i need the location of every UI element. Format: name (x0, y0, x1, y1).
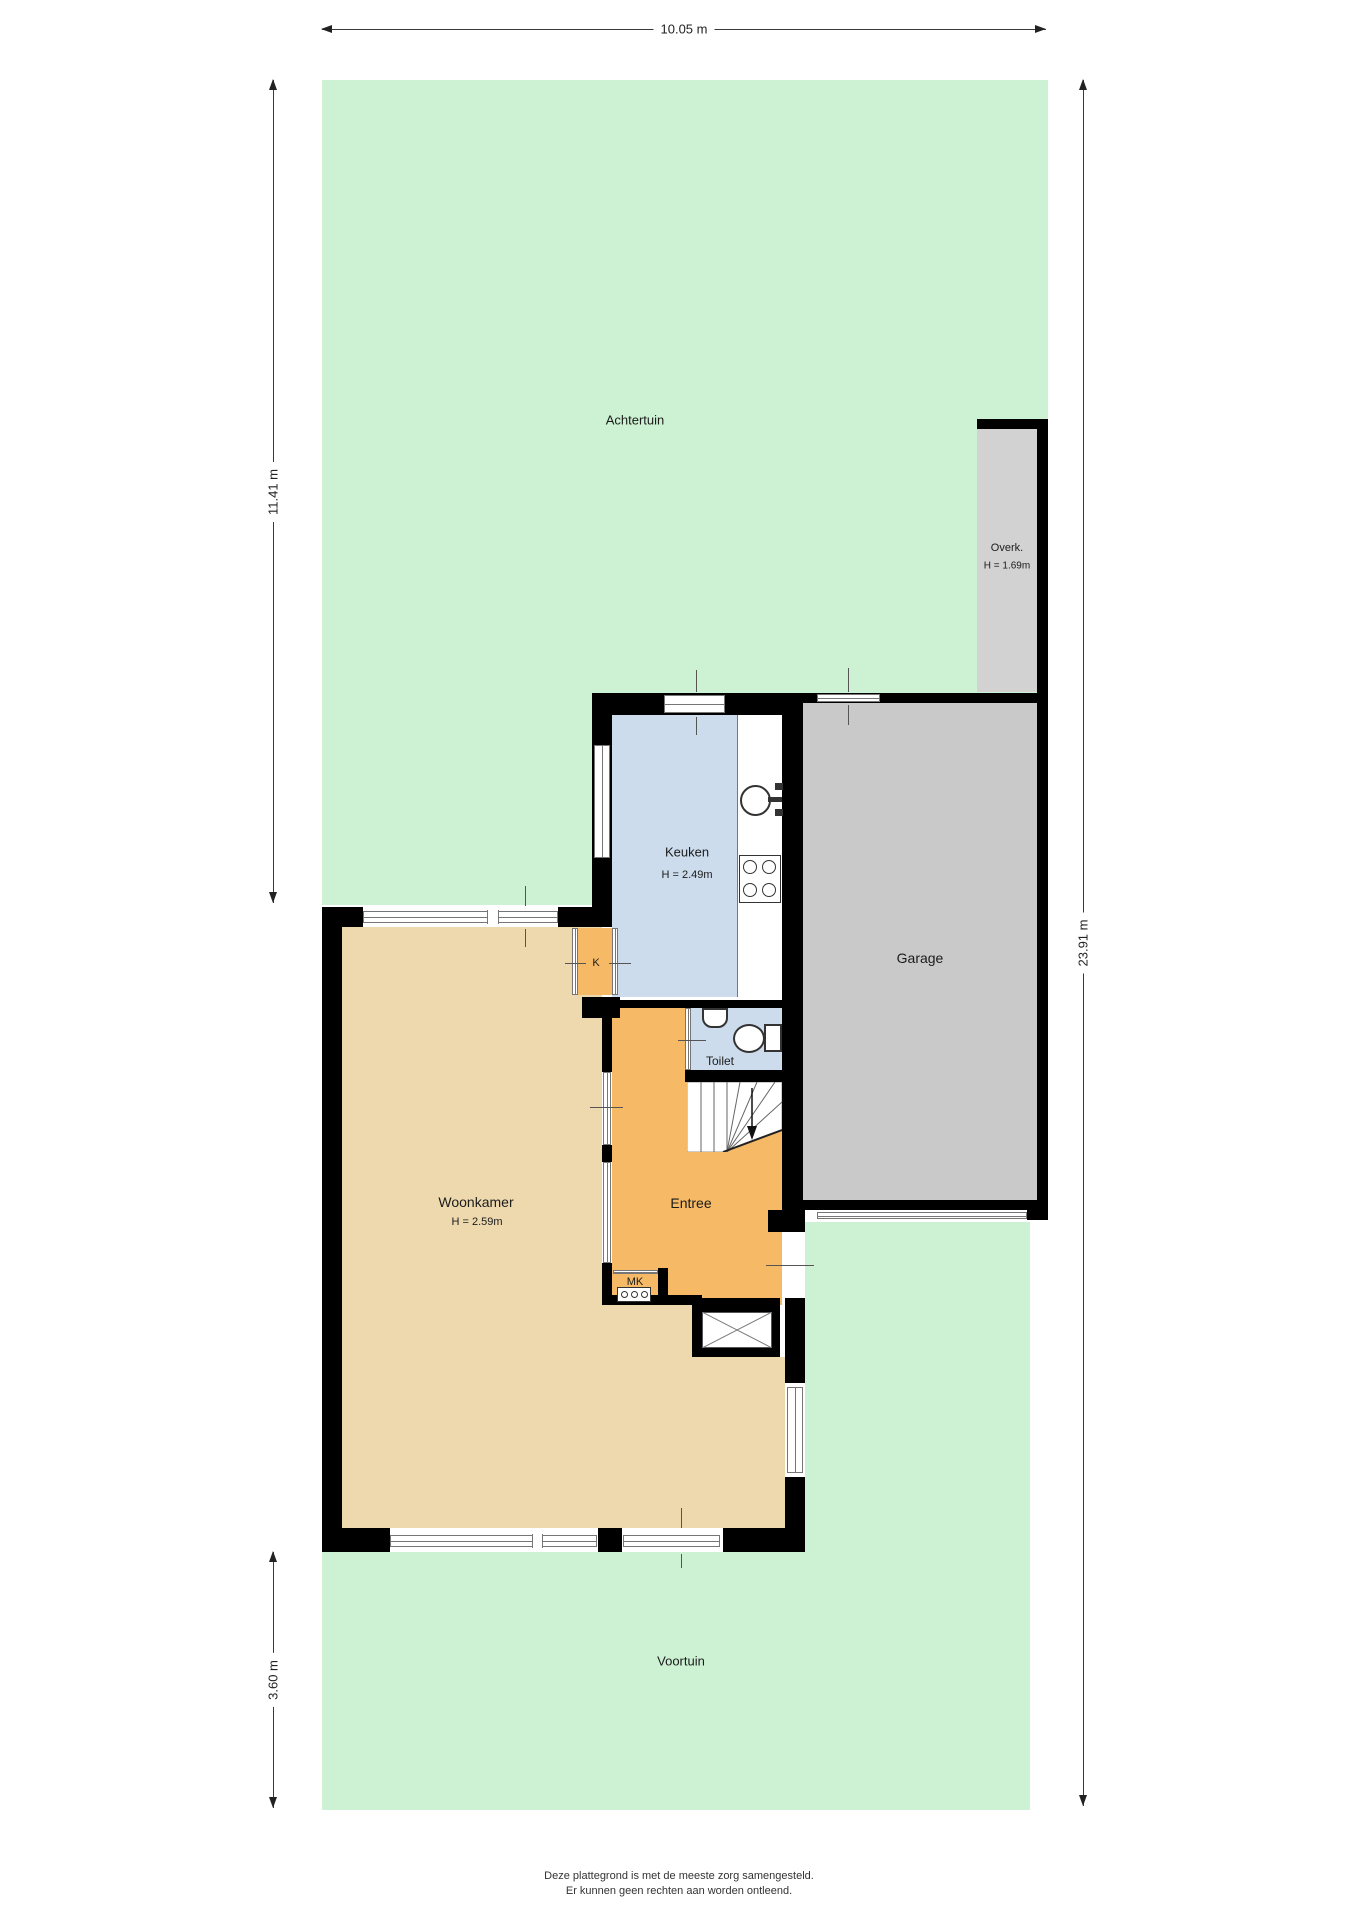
hall-east-window (787, 1387, 803, 1473)
mk-door (613, 1270, 658, 1274)
toilet-wc-bowl (733, 1024, 765, 1053)
meter-closet-label: MK (627, 1276, 644, 1288)
closet-door-left (572, 928, 578, 995)
disclaimer-line-1: Deze plattegrond is met de meeste zorg s… (0, 1869, 1358, 1884)
closet-label: K (592, 957, 599, 969)
disclaimer-line-2: Er kunnen geen rechten aan worden ontlee… (0, 1884, 1358, 1899)
front-door-leaf (702, 1312, 772, 1348)
hall-west-glass-b (603, 1162, 611, 1263)
living-room-extension (602, 1305, 692, 1528)
dim-left-back-label: 11.41 m (266, 462, 281, 522)
stove-burner-4 (762, 883, 776, 897)
dim-top-label: 10.05 m (654, 22, 715, 37)
dim-right-label: 23.91 m (1076, 913, 1091, 974)
wall-garage-front-left-corner (768, 1210, 805, 1232)
dim-left-back-arrow-bottom (269, 892, 277, 903)
tick-toilet-door (678, 1040, 706, 1041)
kitchen-rear-window (664, 695, 725, 713)
tick-bay-in (681, 1554, 682, 1568)
toilet-wc-cistern (764, 1024, 782, 1052)
tick-living-north-out (525, 886, 526, 906)
wall-hall-west-b (602, 1145, 612, 1162)
dim-top-arrow-left (321, 25, 332, 33)
closet-door-right (612, 928, 618, 995)
tick-garage-window-in (848, 705, 849, 725)
living-north-window-mullion (487, 910, 499, 924)
kitchen-faucet (768, 797, 782, 802)
front-garden-label: Voortuin (657, 1654, 705, 1669)
toilet-label: Toilet (706, 1054, 734, 1068)
wall-garage-front (803, 1200, 1048, 1210)
kitchen-height-label: H = 2.49m (661, 869, 712, 881)
tick-hall-west (590, 1107, 623, 1108)
tick-garage-window-out (848, 668, 849, 692)
kitchen-label: Keuken (665, 845, 709, 860)
meter-dial-1 (621, 1291, 628, 1298)
meter-dial-2 (631, 1291, 638, 1298)
wall-bay-pier (598, 1528, 622, 1552)
tick-hall-east (766, 1265, 814, 1266)
garage-label: Garage (897, 950, 944, 966)
living-room-extension2 (692, 1357, 785, 1528)
living-room-height-label: H = 2.59m (451, 1216, 502, 1228)
tick-living-north-in (525, 929, 526, 947)
wall-kitchen-garage (782, 703, 803, 1210)
floorplan: 10.05 m 11.41 m 3.60 m 23.91 m Achtertui… (0, 0, 1358, 1920)
wall-living-west (322, 927, 342, 1552)
kitchen-west-window (594, 745, 610, 858)
bay-window-left (390, 1535, 597, 1547)
hall-label: Entree (670, 1195, 711, 1211)
garage-rear-window (817, 694, 880, 702)
back-garden-left-strip (322, 693, 592, 905)
wall-toilet-bottom (685, 1070, 782, 1082)
kitchen-sink (740, 785, 771, 816)
wall-bay-corner (322, 1528, 390, 1552)
stove-burner-1 (743, 860, 757, 874)
bay-window-mullion (532, 1534, 543, 1548)
dim-left-back-arrow-top (269, 79, 277, 90)
stove-burner-3 (743, 883, 757, 897)
wall-living-north-right (558, 907, 612, 927)
hall-west-glass-a (603, 1072, 611, 1145)
garage-door-band (817, 1212, 1027, 1219)
wall-hall-west-a (602, 1008, 612, 1072)
kitchen-faucet-knob-top (775, 783, 783, 790)
tick-kitchen-window-in (696, 717, 697, 735)
tick-closet-left (565, 963, 586, 964)
dim-left-front-label: 3.60 m (266, 1653, 281, 1707)
kitchen-faucet-knob-bottom (775, 809, 783, 816)
wall-living-north-left (322, 907, 363, 927)
dim-left-front-arrow-top (269, 1551, 277, 1562)
back-garden-area (322, 80, 1048, 693)
living-room-label: Woonkamer (438, 1194, 513, 1210)
canopy-height-label: H = 1.69m (984, 561, 1030, 572)
dim-right-arrow-top (1079, 79, 1087, 90)
meter-dial-3 (641, 1291, 648, 1298)
toilet-basin (702, 1008, 728, 1028)
disclaimer: Deze plattegrond is met de meeste zorg s… (0, 1869, 1358, 1899)
front-garden-area (322, 1552, 1030, 1810)
back-garden-label: Achtertuin (606, 413, 665, 428)
wall-garage-front-right-corner (1027, 1200, 1048, 1220)
wall-toilet-top (612, 1000, 783, 1008)
wall-east-lower-a (785, 1298, 805, 1383)
tick-bay-out (681, 1508, 682, 1528)
tick-kitchen-window-out (696, 670, 697, 692)
dim-top-arrow-right (1035, 25, 1046, 33)
bay-window-right (623, 1535, 720, 1547)
toilet-door (685, 1008, 691, 1070)
tick-closet-right (609, 963, 631, 964)
staircase (687, 1082, 782, 1152)
stove-burner-2 (762, 860, 776, 874)
front-garden-right-strip (805, 1222, 1030, 1552)
wall-canopy-garage-right (1037, 419, 1048, 1210)
wall-east-lower-b (785, 1477, 805, 1552)
dim-right-arrow-bottom (1079, 1795, 1087, 1806)
canopy-label: Overk. (991, 542, 1023, 554)
living-north-window (363, 911, 558, 923)
dim-left-front-arrow-bottom (269, 1797, 277, 1808)
